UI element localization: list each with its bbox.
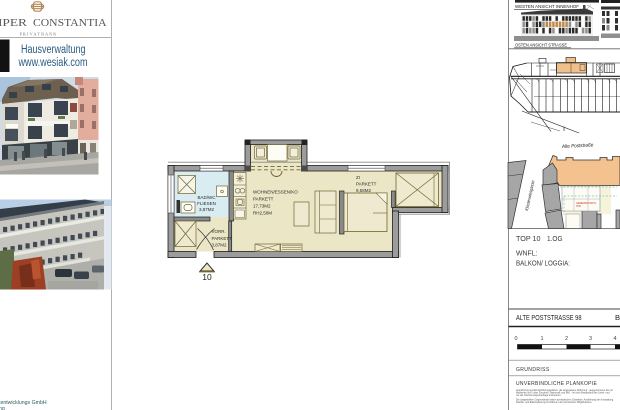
- svg-text:PARKETT: PARKETT: [356, 182, 377, 187]
- svg-text:WNFL:: WNFL:: [516, 251, 538, 258]
- svg-text:3,87M2: 3,87M2: [199, 207, 215, 212]
- svg-text:B: B: [615, 313, 620, 322]
- svg-text:OSTEN ANSICHT STRASSE: OSTEN ANSICHT STRASSE: [515, 42, 567, 47]
- svg-text:10: 10: [202, 272, 212, 282]
- svg-text:1: 1: [540, 336, 543, 342]
- svg-text:WOHNEN/ESSEN/KO: WOHNEN/ESSEN/KO: [253, 190, 298, 195]
- svg-text:1.OG: 1.OG: [547, 234, 563, 243]
- svg-text:CONSTANTIA: CONSTANTIA: [33, 17, 107, 29]
- svg-text:PARKETT: PARKETT: [253, 197, 274, 202]
- svg-text:Sanitär- und Elektroplanung im: Sanitär- und Elektroplanung im Rahmen de…: [516, 401, 592, 404]
- svg-text:9,58M2: 9,58M2: [356, 188, 372, 193]
- svg-text:RH2,50M: RH2,50M: [253, 211, 272, 216]
- svg-text:Hausverwaltung: Hausverwaltung: [21, 44, 86, 56]
- svg-text:GRUNDRISS: GRUNDRISS: [516, 367, 550, 373]
- svg-text:HOF: HOF: [576, 205, 582, 208]
- svg-text:ZI: ZI: [356, 175, 360, 180]
- svg-text:ALTE POSTSTRASSE 98: ALTE POSTSTRASSE 98: [516, 313, 582, 322]
- svg-text:3: 3: [589, 336, 592, 342]
- svg-text:3,87M2: 3,87M2: [212, 243, 228, 248]
- svg-text:17,73M2: 17,73M2: [253, 204, 271, 209]
- svg-text:0: 0: [514, 336, 517, 342]
- svg-text:ng: ng: [0, 406, 5, 410]
- svg-text:BAD/WC: BAD/WC: [198, 195, 217, 200]
- svg-text:WESTEN ANSICHT INNENHOF: WESTEN ANSICHT INNENHOF: [515, 4, 579, 9]
- svg-text:2: 2: [565, 336, 568, 342]
- svg-text:BALKON/ LOGGIA:: BALKON/ LOGGIA:: [516, 261, 570, 268]
- svg-text:MPER: MPER: [0, 17, 28, 29]
- svg-text:TOP 10: TOP 10: [516, 234, 541, 243]
- svg-text:P R I V A T B A N K: P R I V A T B A N K: [20, 32, 58, 37]
- svg-text:FLIESEN: FLIESEN: [197, 201, 216, 206]
- svg-text:UNVERBINDLICHE PLANKOPIE: UNVERBINDLICHE PLANKOPIE: [516, 381, 597, 387]
- svg-text:tentwicklungs GmbH: tentwicklungs GmbH: [0, 400, 47, 406]
- svg-text:4: 4: [613, 336, 616, 342]
- svg-text:PARKETT: PARKETT: [212, 236, 233, 241]
- svg-text:nur als Orientierungsunterlage: nur als Orientierungsunterlage anzusehen…: [516, 394, 562, 397]
- svg-text:VORR.: VORR.: [212, 229, 226, 234]
- svg-text:www.wesiak.com: www.wesiak.com: [18, 57, 88, 69]
